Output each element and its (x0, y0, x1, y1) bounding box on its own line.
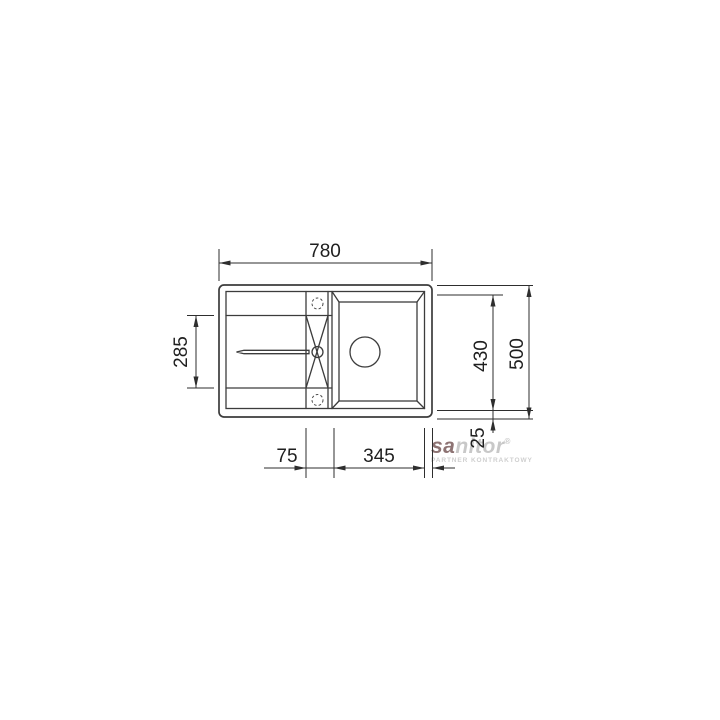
dim-label-bottom-offset: 25 (468, 427, 489, 448)
dim-label-right-inner-depth: 430 (471, 340, 492, 372)
drainer-area-group (226, 316, 332, 389)
technical-drawing-svg: 780 285 430 500 (0, 0, 720, 720)
bowl-chamfer-bottom-left (332, 401, 339, 409)
drain-hole (350, 337, 380, 367)
arrowhead-edge-right (433, 466, 445, 471)
arrowhead-bottom (491, 399, 496, 411)
dim-label-bottom-bowl: 345 (363, 446, 395, 467)
arrowhead-top (194, 316, 199, 328)
dim-bottom-widths: 75 345 (264, 428, 455, 478)
arrowhead-top (491, 295, 496, 307)
tap-hole-bottom (312, 395, 323, 406)
dim-top-width: 780 (219, 241, 432, 281)
bowl-chamfer-bottom-right (417, 401, 425, 409)
sink-outline-group (219, 285, 432, 417)
bowl-chamfer-top-left (332, 292, 339, 303)
arrowhead-bottom (194, 377, 199, 389)
arrowhead-bottom (527, 408, 532, 420)
arrowhead-bowl-right (413, 466, 425, 471)
dim-label-left-depth: 285 (171, 336, 192, 368)
bowl-chamfer-top-right (417, 292, 425, 303)
sink-outer-edge (219, 285, 432, 417)
dim-label-bottom-ledge: 75 (276, 446, 297, 467)
dim-label-top-width: 780 (309, 241, 341, 262)
dim-left-depth: 285 (171, 316, 214, 389)
bowl-group (332, 292, 425, 409)
arrowhead-up (491, 419, 496, 431)
dim-label-right-total-depth: 500 (507, 338, 528, 370)
arrowhead-bowl-left (334, 466, 346, 471)
dim-bottom-offset: 25 (468, 411, 496, 449)
sink-dimension-drawing-page: sanitor® PARTNER KONTRAKTOWY (0, 0, 720, 720)
tap-hole-top (312, 298, 323, 309)
arrowhead-left (219, 261, 231, 266)
arrowhead-top (527, 286, 532, 298)
bowl-inner (339, 302, 417, 401)
arrowhead-right (421, 261, 433, 266)
drainer-groove (237, 350, 310, 353)
